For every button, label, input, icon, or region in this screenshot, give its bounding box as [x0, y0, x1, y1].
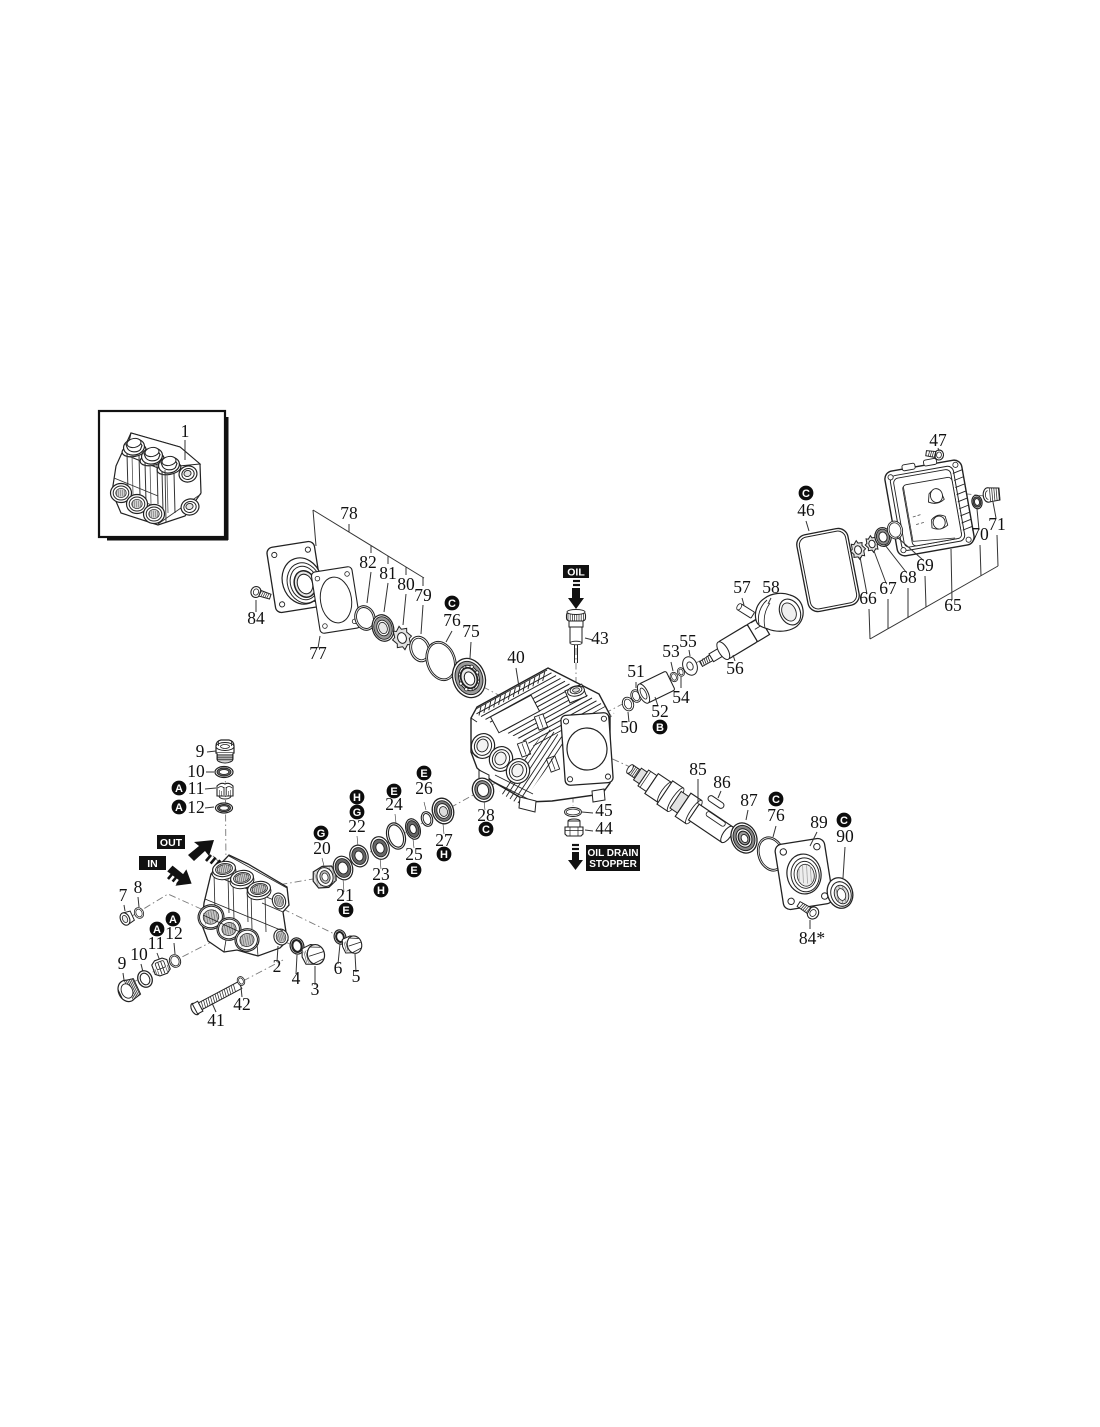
svg-text:H: H	[377, 885, 385, 897]
svg-text:1: 1	[181, 421, 190, 441]
svg-text:84: 84	[247, 608, 265, 628]
svg-text:55: 55	[679, 631, 697, 651]
svg-text:80: 80	[397, 574, 415, 594]
svg-text:79: 79	[414, 585, 432, 605]
svg-text:9: 9	[118, 953, 127, 973]
svg-text:OIL DRAIN: OIL DRAIN	[588, 848, 639, 859]
svg-text:22: 22	[348, 816, 366, 836]
svg-text:87: 87	[740, 790, 758, 810]
svg-text:H: H	[440, 849, 448, 861]
svg-text:OIL: OIL	[567, 566, 585, 578]
svg-text:12: 12	[187, 797, 205, 817]
svg-text:44: 44	[595, 818, 613, 838]
svg-text:82: 82	[359, 552, 377, 572]
svg-text:54: 54	[672, 687, 690, 707]
svg-text:53: 53	[662, 641, 680, 661]
svg-text:69: 69	[916, 555, 934, 575]
svg-text:76: 76	[443, 610, 461, 630]
svg-text:66: 66	[859, 588, 877, 608]
svg-text:23: 23	[372, 864, 390, 884]
svg-text:E: E	[342, 905, 349, 917]
svg-text:51: 51	[627, 661, 645, 681]
svg-text:47: 47	[929, 430, 947, 450]
svg-text:75: 75	[462, 621, 480, 641]
svg-text:85: 85	[689, 759, 707, 779]
svg-text:24: 24	[385, 794, 403, 814]
svg-text:46: 46	[797, 500, 815, 520]
svg-text:77: 77	[309, 643, 327, 663]
svg-text:50: 50	[620, 717, 638, 737]
svg-text:76: 76	[767, 805, 785, 825]
svg-text:12: 12	[165, 923, 183, 943]
svg-text:40: 40	[507, 647, 525, 667]
svg-text:21: 21	[336, 885, 354, 905]
svg-text:B: B	[656, 722, 664, 734]
svg-text:86: 86	[713, 772, 731, 792]
svg-text:84*: 84*	[799, 928, 825, 948]
svg-text:E: E	[410, 865, 417, 877]
svg-text:71: 71	[988, 514, 1006, 534]
svg-text:57: 57	[733, 577, 751, 597]
svg-text:70: 70	[971, 524, 989, 544]
svg-text:67: 67	[879, 578, 897, 598]
svg-text:STOPPER: STOPPER	[589, 859, 637, 870]
svg-text:IN: IN	[147, 858, 158, 870]
svg-text:81: 81	[379, 563, 397, 583]
svg-text:7: 7	[119, 885, 128, 905]
svg-text:9: 9	[196, 741, 205, 761]
svg-text:11: 11	[188, 778, 205, 798]
svg-text:65: 65	[944, 595, 962, 615]
svg-text:58: 58	[762, 577, 780, 597]
svg-text:90: 90	[836, 826, 854, 846]
svg-text:68: 68	[899, 567, 917, 587]
svg-text:52: 52	[651, 701, 669, 721]
svg-text:20: 20	[313, 838, 331, 858]
svg-text:89: 89	[810, 812, 828, 832]
svg-text:C: C	[802, 488, 810, 500]
svg-text:A: A	[175, 783, 183, 795]
svg-text:C: C	[482, 824, 490, 836]
svg-text:26: 26	[415, 778, 433, 798]
svg-text:8: 8	[134, 877, 143, 897]
svg-text:45: 45	[595, 800, 613, 820]
svg-text:56: 56	[726, 658, 744, 678]
svg-text:78: 78	[340, 503, 358, 523]
svg-text:11: 11	[148, 933, 165, 953]
svg-text:10: 10	[130, 944, 148, 964]
svg-text:OUT: OUT	[160, 837, 183, 849]
svg-text:H: H	[353, 792, 361, 804]
svg-text:41: 41	[207, 1010, 225, 1030]
svg-text:C: C	[448, 598, 456, 610]
svg-text:A: A	[175, 802, 183, 814]
svg-text:43: 43	[591, 628, 609, 648]
